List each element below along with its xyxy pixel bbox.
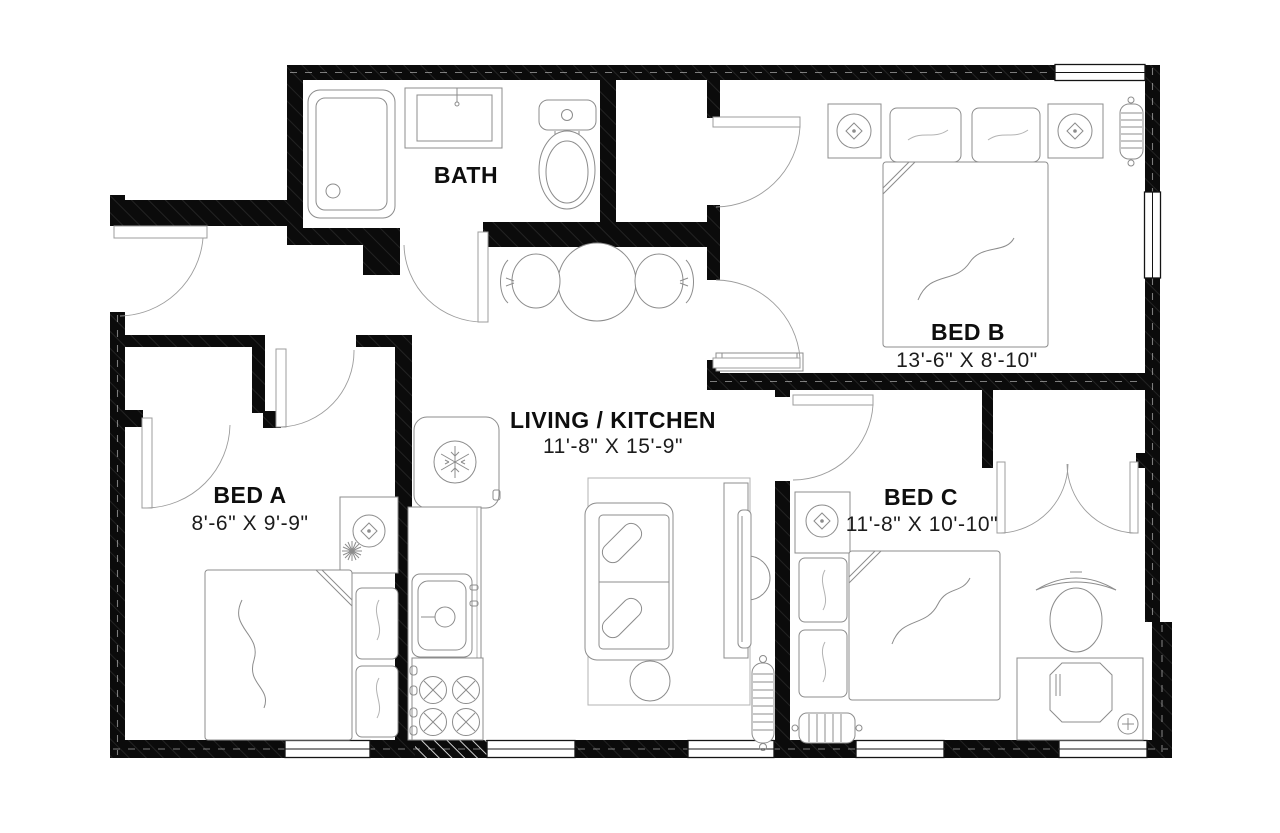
- bed-b-pillow-2: [972, 108, 1040, 162]
- radiator-bedb: [1120, 97, 1143, 166]
- label-bath: BATH: [434, 162, 498, 188]
- floor-plan-canvas: BATH LIVING / KITCHEN 11'-8" X 15'-9" BE…: [0, 0, 1280, 828]
- radiator-bedc: [792, 713, 862, 743]
- vanity-sink: [405, 88, 502, 148]
- label-bed-c: BED C: [884, 484, 958, 510]
- dim-bed-c: 11'-8" X 10'-10": [846, 513, 998, 536]
- toilet: [539, 100, 596, 209]
- wall-bath-south-a: [287, 228, 400, 245]
- dining-table: [558, 243, 636, 321]
- side-table: [630, 661, 670, 701]
- stove: [410, 658, 483, 740]
- wall-bedb-closet-stub-2: [707, 205, 720, 280]
- sofa: [585, 503, 673, 660]
- wall-beda-closet-east: [252, 347, 265, 413]
- window-living-south-1: [487, 741, 575, 758]
- nightstand-bedb-left: [828, 104, 881, 158]
- desk-lamp-icon: [1118, 714, 1138, 734]
- bed-a-pillow-1: [356, 588, 398, 659]
- nightstand-bedc: [795, 492, 850, 553]
- label-bed-b: BED B: [931, 319, 1005, 345]
- bed-a: [205, 570, 398, 740]
- plant-icon: [342, 541, 362, 561]
- window-bedb-north: [1055, 65, 1145, 81]
- wall-bottom-1: [110, 740, 285, 758]
- desk: [1017, 658, 1143, 740]
- wall-bath-east: [600, 80, 616, 230]
- window-beda-south: [285, 741, 370, 758]
- radiator-living: [752, 656, 774, 751]
- label-bed-a: BED A: [213, 482, 286, 508]
- fridge: [414, 417, 500, 508]
- desk-mat: [1050, 663, 1112, 722]
- wall-beda-closet-top: [118, 335, 265, 347]
- floor-plan: BATH LIVING / KITCHEN 11'-8" X 15'-9" BE…: [0, 0, 1280, 828]
- tv-screen: [738, 510, 751, 648]
- dim-bed-a: 8'-6" X 9'-9": [191, 512, 308, 535]
- window-bedc-south-1: [856, 741, 944, 758]
- kitchen-sink: [412, 574, 478, 657]
- dim-bed-b: 13'-6" X 8'-10": [896, 349, 1038, 372]
- window-bedb-east: [1145, 192, 1161, 278]
- wall-hall-top: [110, 200, 290, 226]
- dim-living-kitchen: 11'-8" X 15'-9": [543, 435, 683, 458]
- wall-bedc-west-jamb: [775, 390, 790, 397]
- nightstand-bedb-right: [1048, 104, 1103, 158]
- window-bedc-south-2: [1059, 741, 1147, 758]
- bed-c-pillow-1: [799, 558, 847, 622]
- wall-bath-west: [287, 65, 303, 245]
- bed-a-pillow-2: [356, 666, 398, 737]
- nightstand-beda: [340, 497, 398, 573]
- wall-bedb-closet-stub-1: [707, 80, 720, 118]
- bed-c-pillow-2: [799, 630, 847, 697]
- bed-b-pillow-1: [890, 108, 961, 162]
- wall-bath-south-pier: [363, 245, 400, 275]
- wall-beda-closet-hinge-stub: [125, 410, 143, 427]
- wall-bedc-closet-west: [982, 373, 993, 468]
- wall-bedc-west: [775, 481, 790, 740]
- label-living-kitchen: LIVING / KITCHEN: [510, 407, 716, 433]
- shower: [308, 90, 395, 218]
